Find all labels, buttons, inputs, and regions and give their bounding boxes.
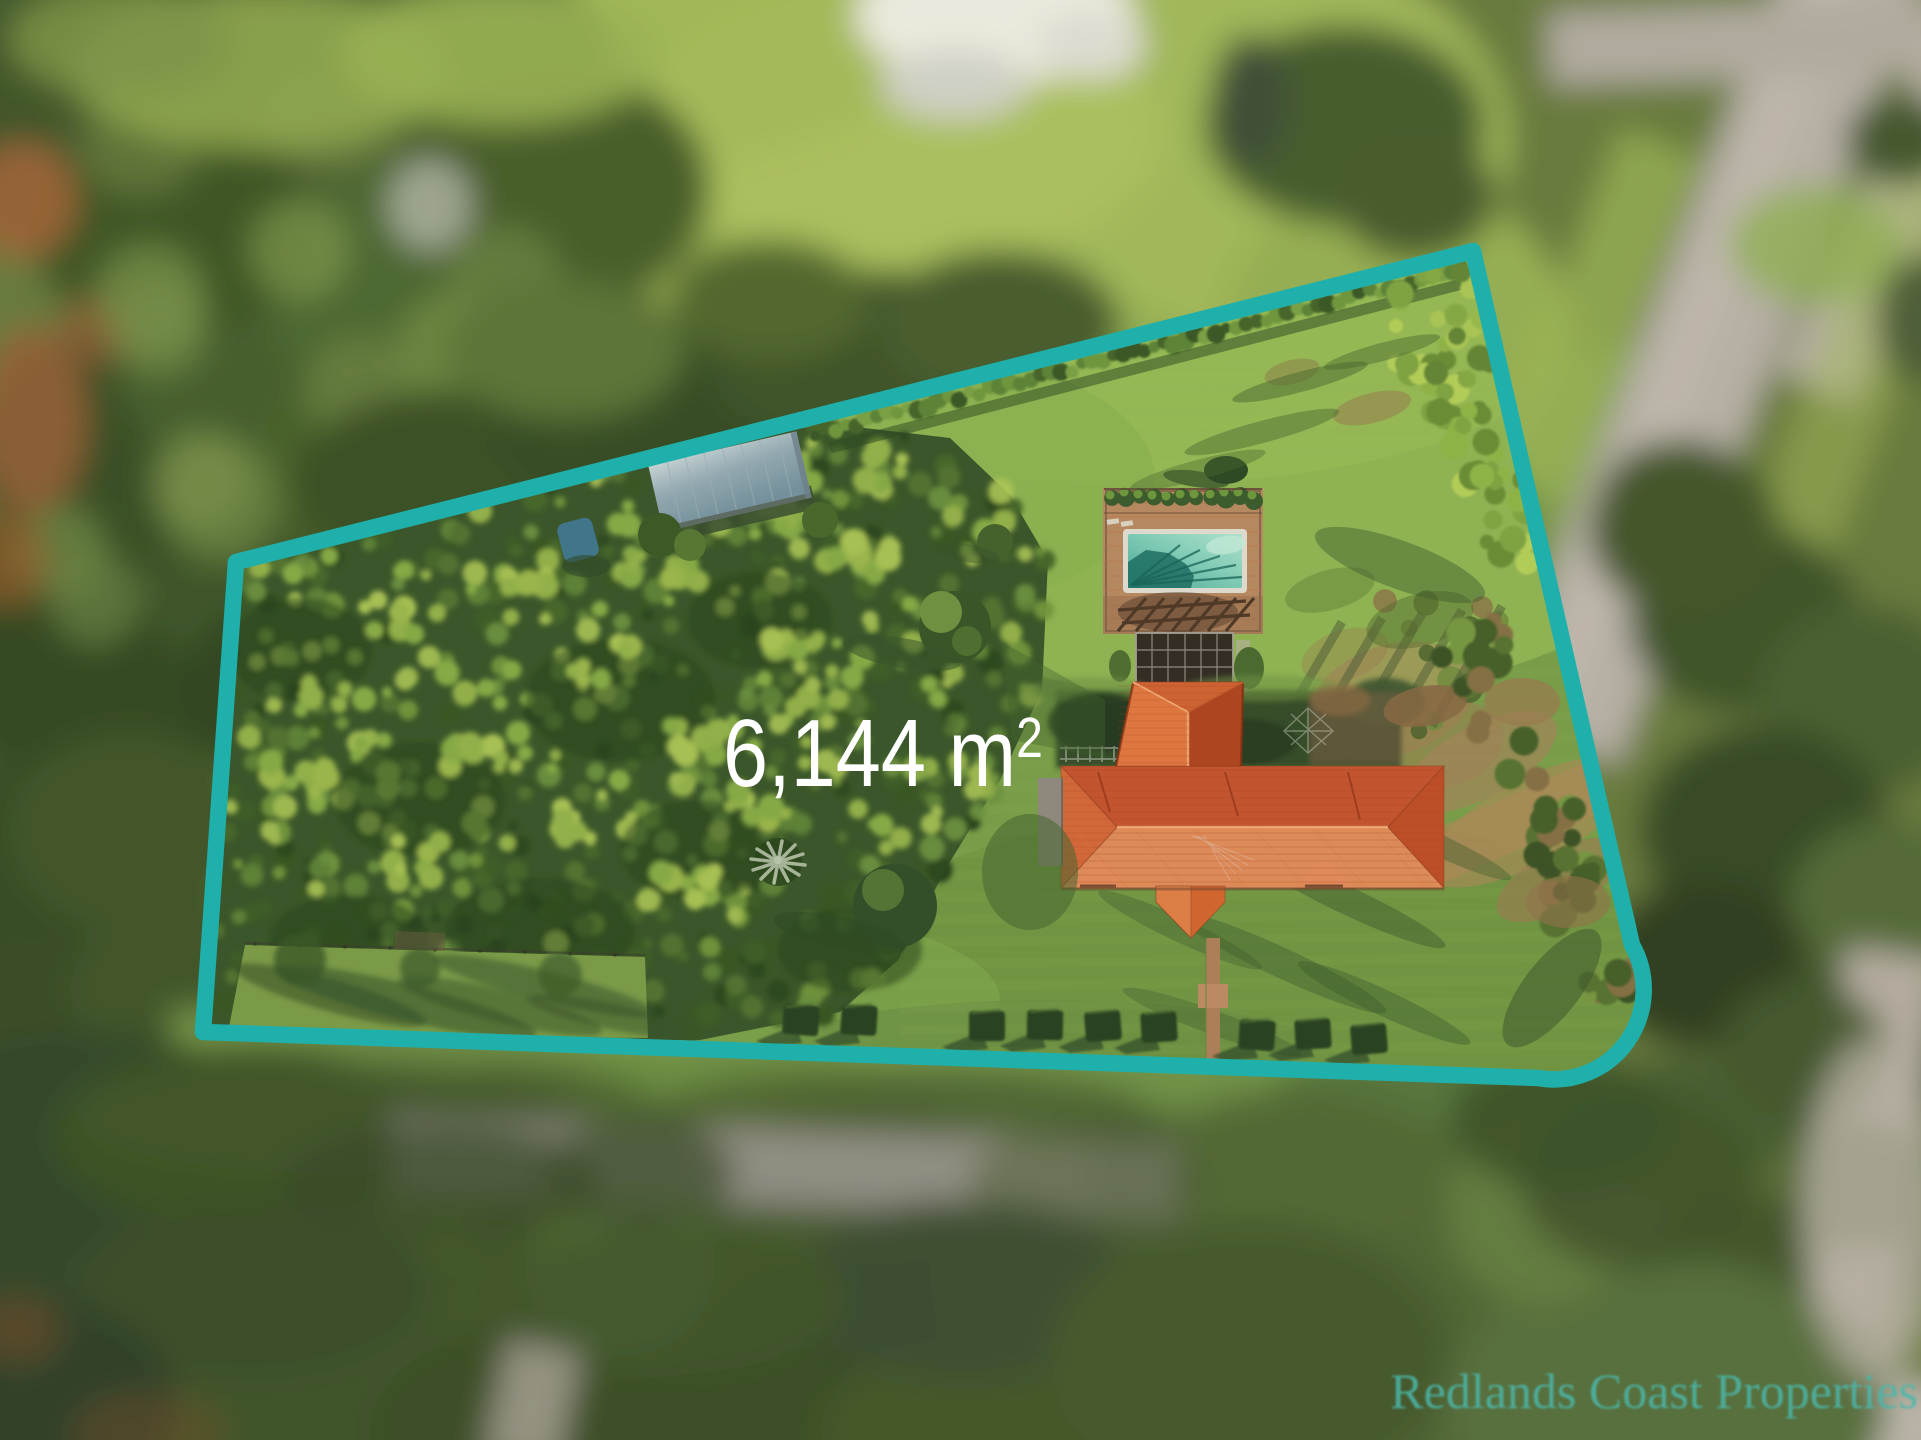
- svg-text:Redlands Coast Properties: Redlands Coast Properties: [1390, 1363, 1918, 1419]
- svg-text:6,144 m2: 6,144 m2: [723, 700, 1043, 807]
